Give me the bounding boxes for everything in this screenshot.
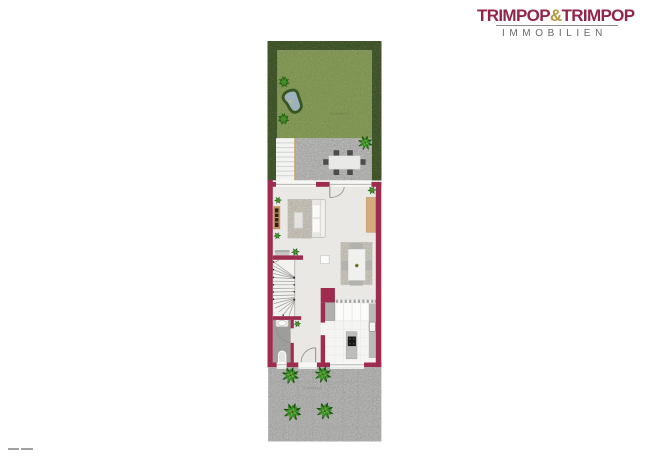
svg-text:floorplanner: floorplanner [330,112,350,116]
svg-text:floorplanner: floorplanner [303,386,323,390]
